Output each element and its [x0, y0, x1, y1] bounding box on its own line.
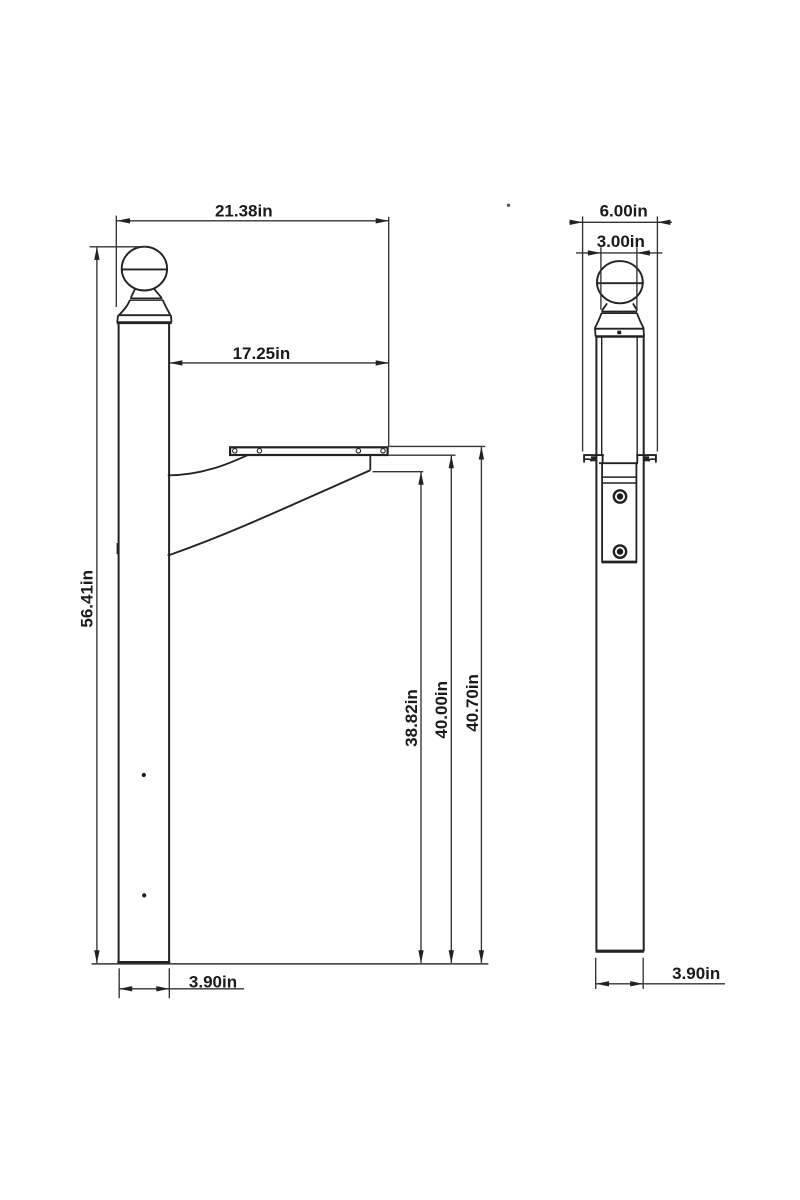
svg-text:3.90in: 3.90in [672, 964, 720, 983]
svg-text:21.38in: 21.38in [215, 201, 273, 220]
svg-text:38.82in: 38.82in [402, 689, 421, 747]
svg-text:40.70in: 40.70in [463, 674, 482, 732]
svg-text:3.90in: 3.90in [189, 972, 237, 991]
svg-text:40.00in: 40.00in [432, 681, 451, 739]
svg-text:56.41in: 56.41in [77, 570, 96, 628]
svg-text:17.25in: 17.25in [233, 344, 291, 363]
svg-text:6.00in: 6.00in [600, 201, 648, 220]
svg-text:3.00in: 3.00in [597, 232, 645, 251]
